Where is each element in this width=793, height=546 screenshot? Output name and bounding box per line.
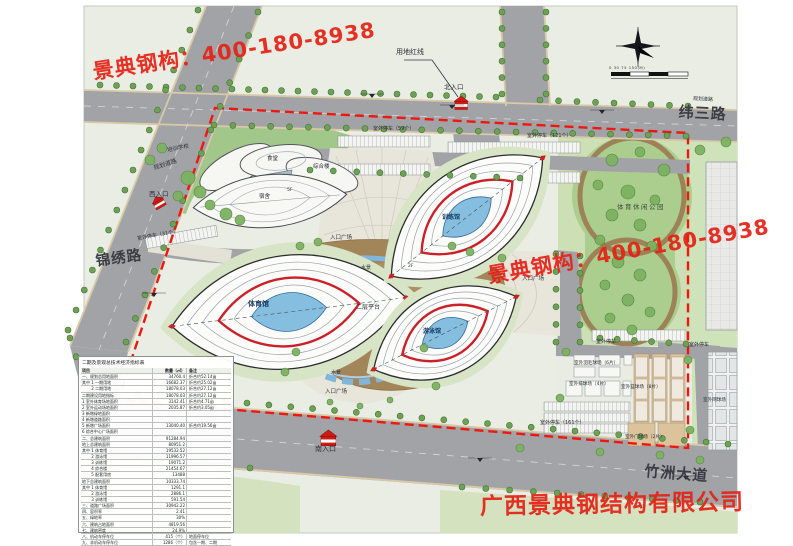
indicator-table-title: 二期及景观总技术经济指标表 <box>82 359 231 366</box>
watermark-company: 广西景典钢结构有限公司 <box>480 491 744 519</box>
indicator-table: 二期及景观总技术经济指标表 项目 数量（㎡） 备注 一、规划总用地面积 3476… <box>78 356 234 533</box>
indicator-table-body: 一、规划总用地面积 34760.4 折合约52.14亩 其中 1 一期用地 16… <box>81 374 231 546</box>
table-row: 九、非机动车停车位 1286（个） 包含一期、二期 <box>81 540 231 546</box>
offsite-buildings <box>706 162 737 450</box>
